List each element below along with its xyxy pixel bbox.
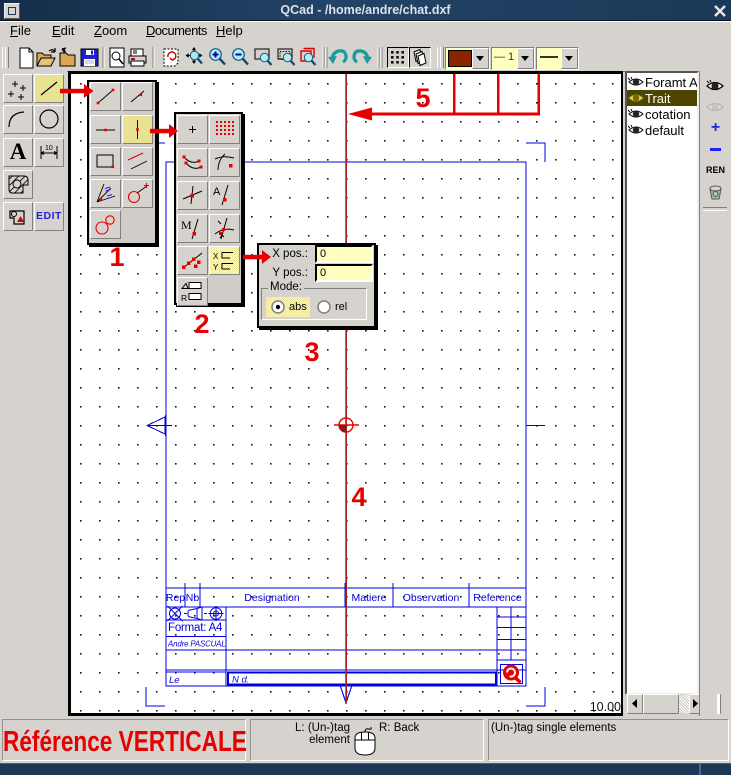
svg-text:Le: Le bbox=[169, 675, 180, 686]
svg-text:X: X bbox=[213, 252, 219, 261]
svg-text:Designation: Designation bbox=[244, 592, 300, 604]
svg-text:A: A bbox=[213, 186, 221, 198]
svg-text:Nb: Nb bbox=[186, 592, 200, 604]
svg-text:10.00: 10.00 bbox=[590, 700, 621, 713]
svg-text:R: R bbox=[181, 293, 187, 303]
svg-text:Observation: Observation bbox=[403, 592, 460, 604]
svg-text:10: 10 bbox=[45, 145, 53, 152]
svg-text:Matiere: Matiere bbox=[351, 592, 386, 604]
svg-text:Rep: Rep bbox=[166, 592, 185, 604]
svg-text:Andre PASCUAL: Andre PASCUAL bbox=[167, 640, 226, 649]
svg-text:Reference: Reference bbox=[473, 592, 522, 604]
svg-text:N d.: N d. bbox=[232, 675, 249, 686]
svg-text:Y: Y bbox=[213, 263, 219, 272]
svg-text:M: M bbox=[181, 218, 192, 232]
svg-text:Format: A4: Format: A4 bbox=[168, 622, 223, 634]
